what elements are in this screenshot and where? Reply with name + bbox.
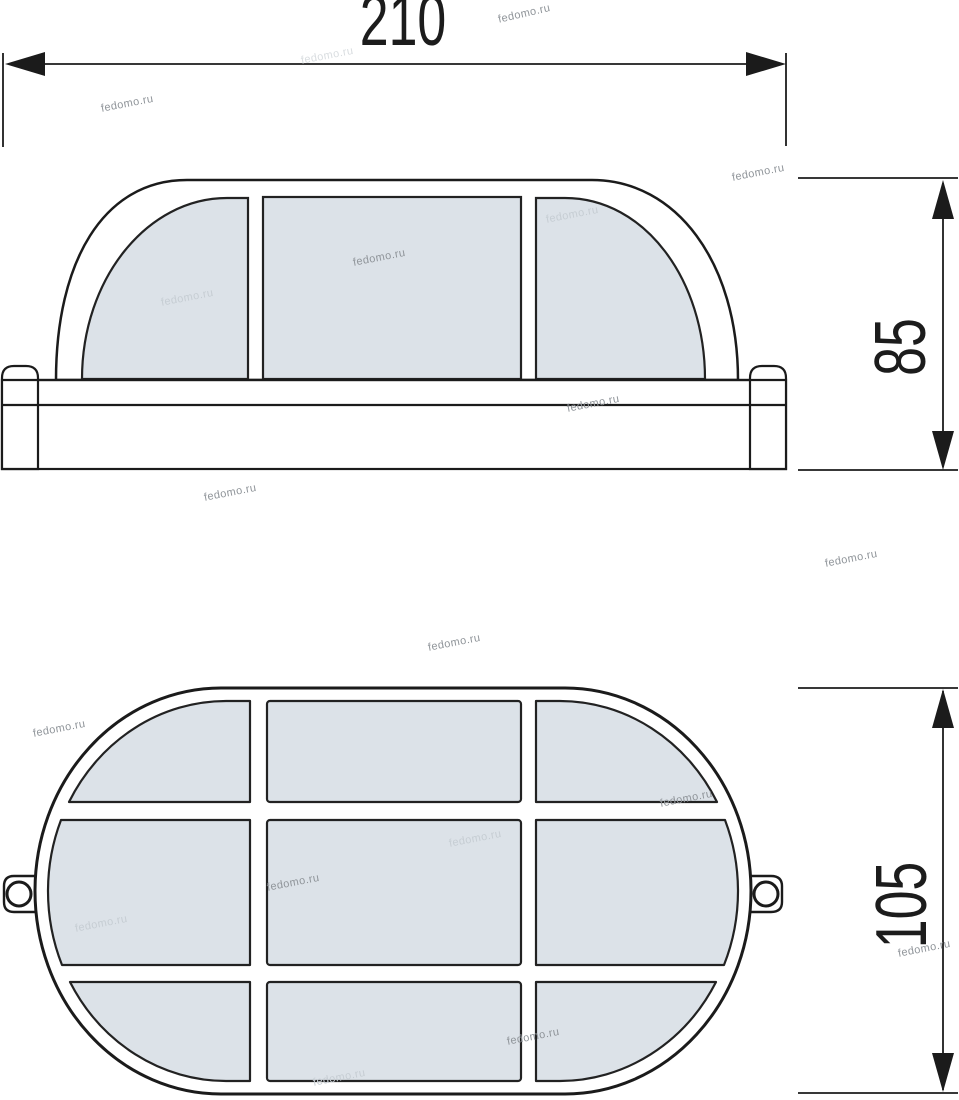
arrowhead-down (932, 1053, 954, 1092)
mounting-hole-left (7, 882, 31, 906)
side-view-base (2, 380, 786, 469)
arrowhead-right (746, 52, 786, 76)
arrowhead-up (932, 689, 954, 728)
front-view (4, 688, 782, 1094)
arrowhead-down (932, 431, 954, 470)
dimension-value-front-height: 105 (866, 862, 938, 949)
dimension-value-width: 210 (360, 0, 447, 57)
side-view (2, 180, 786, 469)
glass-panel-top-center (267, 701, 521, 802)
side-view-end-cap-left (2, 366, 38, 469)
mounting-hole-right (754, 882, 778, 906)
arrowhead-up (932, 180, 954, 219)
dimension-value-side-height: 85 (865, 318, 937, 376)
drawing-page: 210 85 105 fedomo.ru fedomo.ru fedomo.ru… (0, 0, 959, 1100)
arrowhead-left (5, 52, 45, 76)
glass-panel-mid-left (48, 820, 250, 965)
lamp-technical-drawing (0, 0, 959, 1100)
glass-panel-bottom-center (267, 982, 521, 1081)
side-view-end-cap-right (750, 366, 786, 469)
glass-panel-mid-right (536, 820, 738, 965)
front-view-grille (48, 701, 738, 1081)
side-view-glass-center (263, 197, 521, 379)
